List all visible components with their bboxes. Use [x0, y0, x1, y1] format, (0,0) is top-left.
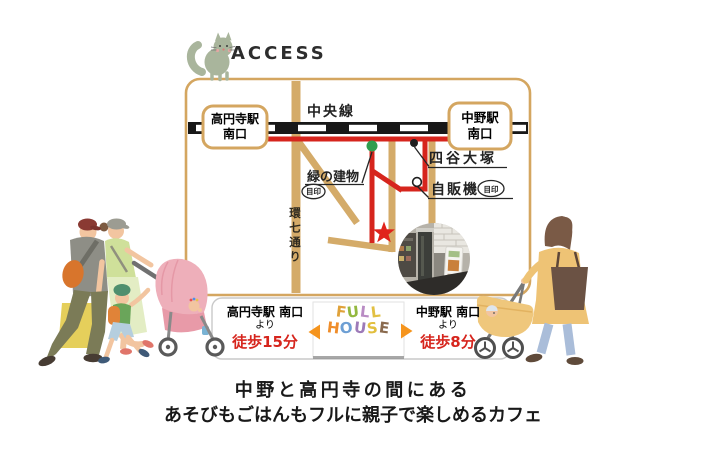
green-building-marker	[367, 141, 378, 152]
koenji-station-exit: 南口	[223, 127, 247, 142]
walk-info-koenji: 高円寺駅 南口 より 徒歩15分	[213, 302, 317, 351]
koenji-station-label: 高円寺駅 南口	[203, 106, 267, 148]
cat-mascot-icon	[191, 32, 235, 80]
vending-machine-badge: 目印	[478, 184, 504, 195]
walk-info-nakano-station: 中野駅 南口	[396, 305, 500, 319]
rail-line-label: 中央線	[300, 101, 362, 121]
koenji-station-name: 高円寺駅	[211, 112, 259, 127]
access-flyer: ACCESS 中央線 高円寺駅 南口 中野駅 南口 緑の建物 目印 四谷大塚 自…	[0, 0, 706, 454]
green-building-label: 緑の建物	[301, 166, 365, 185]
kannana-street-label: 環七通り	[287, 207, 303, 271]
nakano-station-name: 中野駅	[461, 110, 499, 126]
yotsuya-marker	[410, 139, 418, 147]
page-title: ACCESS	[231, 43, 327, 64]
green-building-badge: 目印	[302, 186, 325, 197]
nakano-station-exit: 南口	[467, 126, 492, 142]
logo-line2: HOUSE	[315, 321, 402, 337]
walk-info-nakano-time: 徒歩8分	[396, 333, 500, 351]
tagline-line1: 中野と高円寺の間にある	[0, 376, 706, 402]
nakano-station-label: 中野駅 南口	[449, 103, 511, 149]
walk-info-koenji-station: 高円寺駅 南口	[213, 305, 317, 319]
full-house-logo: FULL HOUSE	[315, 305, 402, 337]
vending-machine-label: 自販機	[431, 179, 481, 199]
yotsuya-otsuka-label: 四谷大塚	[429, 148, 509, 168]
walk-info-nakano-via: より	[396, 320, 500, 332]
tagline-line2: あそびもごはんもフルに親子で楽しめるカフェ	[0, 401, 706, 427]
vending-marker	[413, 178, 422, 187]
walk-info-koenji-time: 徒歩15分	[213, 333, 317, 351]
walk-info-nakano: 中野駅 南口 より 徒歩8分	[396, 302, 500, 351]
walk-info-koenji-via: より	[213, 320, 317, 332]
